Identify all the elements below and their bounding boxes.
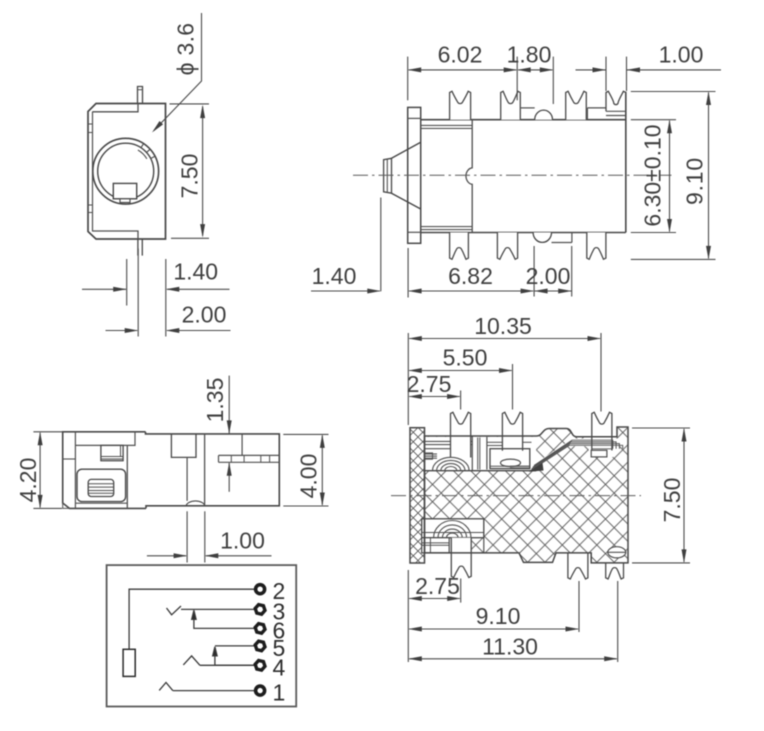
svg-text:9.10: 9.10 xyxy=(476,603,521,629)
svg-text:6.82: 6.82 xyxy=(448,263,493,289)
svg-text:2.75: 2.75 xyxy=(415,573,460,599)
svg-text:1.35: 1.35 xyxy=(202,378,228,423)
svg-text:4: 4 xyxy=(273,654,286,680)
svg-text:1.80: 1.80 xyxy=(507,42,552,68)
svg-text:1.40: 1.40 xyxy=(312,263,357,289)
svg-text:10.35: 10.35 xyxy=(474,313,532,339)
svg-text:1: 1 xyxy=(273,680,286,706)
svg-text:7.50: 7.50 xyxy=(659,478,685,523)
svg-text:5.50: 5.50 xyxy=(443,345,488,371)
svg-text:2.75: 2.75 xyxy=(407,371,452,397)
svg-text:ϕ 3.6: ϕ 3.6 xyxy=(173,23,199,76)
svg-text:6.30±0.10: 6.30±0.10 xyxy=(640,124,666,226)
svg-text:11.30: 11.30 xyxy=(482,634,538,660)
svg-text:6.02: 6.02 xyxy=(438,42,483,68)
svg-text:4.00: 4.00 xyxy=(296,454,322,499)
svg-text:9.10: 9.10 xyxy=(682,157,708,205)
svg-text:1.40: 1.40 xyxy=(173,259,218,285)
svg-text:2.00: 2.00 xyxy=(526,263,571,289)
svg-text:2.00: 2.00 xyxy=(182,302,227,328)
svg-text:4.20: 4.20 xyxy=(15,458,41,503)
svg-text:1.00: 1.00 xyxy=(220,528,265,554)
svg-text:1.00: 1.00 xyxy=(659,42,704,68)
svg-text:7.50: 7.50 xyxy=(177,154,203,199)
